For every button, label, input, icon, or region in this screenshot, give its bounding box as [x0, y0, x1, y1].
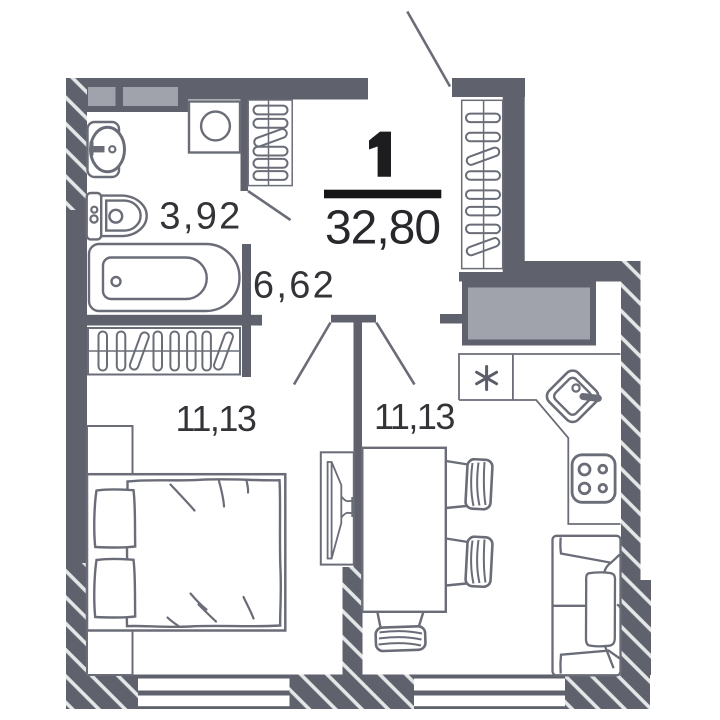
svg-text:3,92: 3,92	[159, 196, 242, 238]
svg-text:6,62: 6,62	[253, 265, 336, 307]
svg-text:11,13: 11,13	[176, 398, 256, 439]
svg-text:32,80: 32,80	[325, 202, 440, 255]
svg-text:11,13: 11,13	[374, 396, 454, 437]
